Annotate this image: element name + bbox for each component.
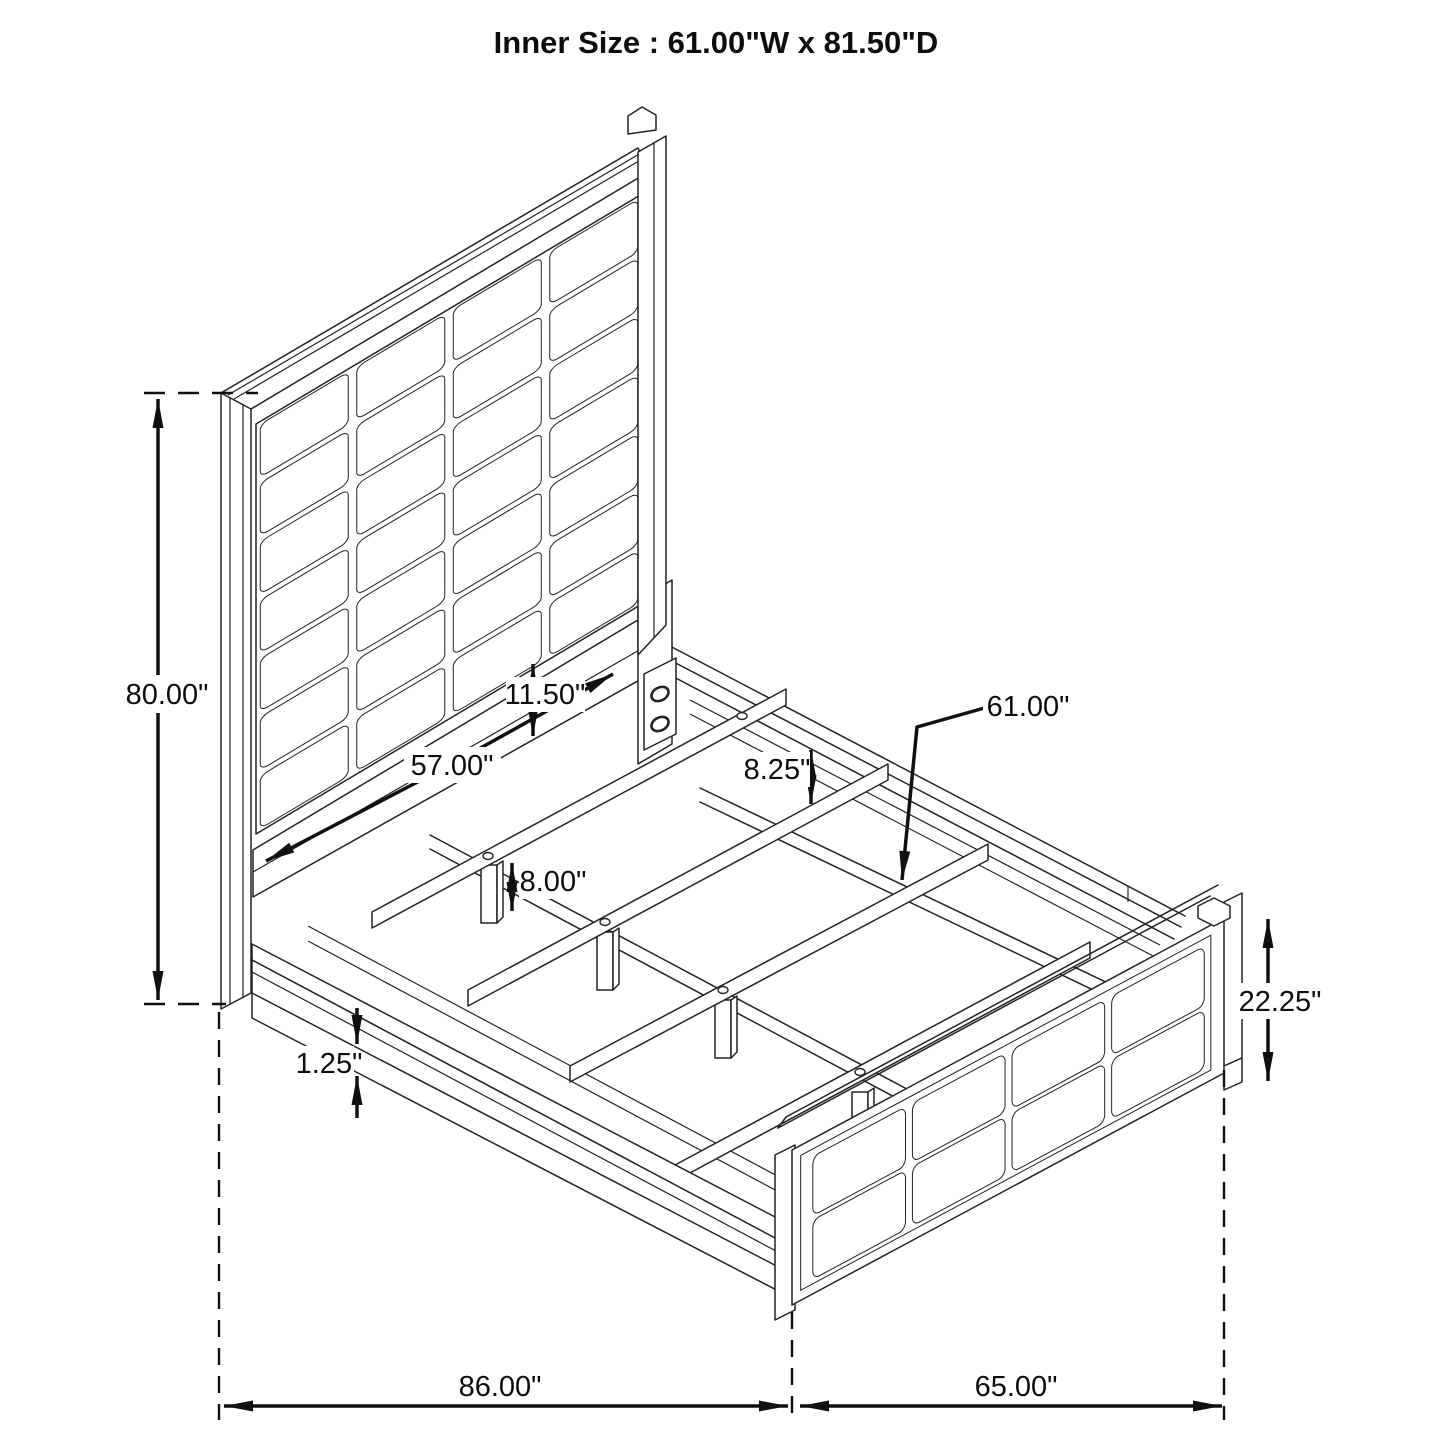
- dim-label-overall-length: 86.00": [459, 1371, 542, 1403]
- dim-label-overall-width: 65.00": [975, 1371, 1058, 1403]
- page-title: Inner Size : 61.00"W x 81.50"D: [494, 25, 939, 60]
- dim-label-slat-length: 61.00": [987, 691, 1070, 723]
- dim-label-panel-gap: 11.50": [505, 679, 586, 711]
- dim-label-headboard-height: 80.00": [126, 679, 209, 711]
- rail-bracket: [644, 658, 676, 750]
- diagram-canvas: 80.00" 11.50" 57.00" 8.25" 61.00" 8.00" …: [0, 0, 1445, 1445]
- bed-frame-dimension-diagram: 80.00" 11.50" 57.00" 8.25" 61.00" 8.00" …: [0, 0, 1445, 1445]
- dim-label-leg-height: 8.00": [520, 866, 587, 898]
- headboard-cap-notch: [628, 107, 656, 134]
- headboard-right-edge: [638, 136, 666, 655]
- right-side-rail: [668, 645, 1185, 939]
- dim-label-footboard-height: 22.25": [1239, 986, 1322, 1018]
- dim-label-base-trim: 1.25": [296, 1048, 363, 1080]
- headboard-left-post: [221, 376, 251, 1009]
- dim-label-inner-width: 57.00": [411, 750, 494, 782]
- dim-label-rail-height: 8.25": [744, 754, 811, 786]
